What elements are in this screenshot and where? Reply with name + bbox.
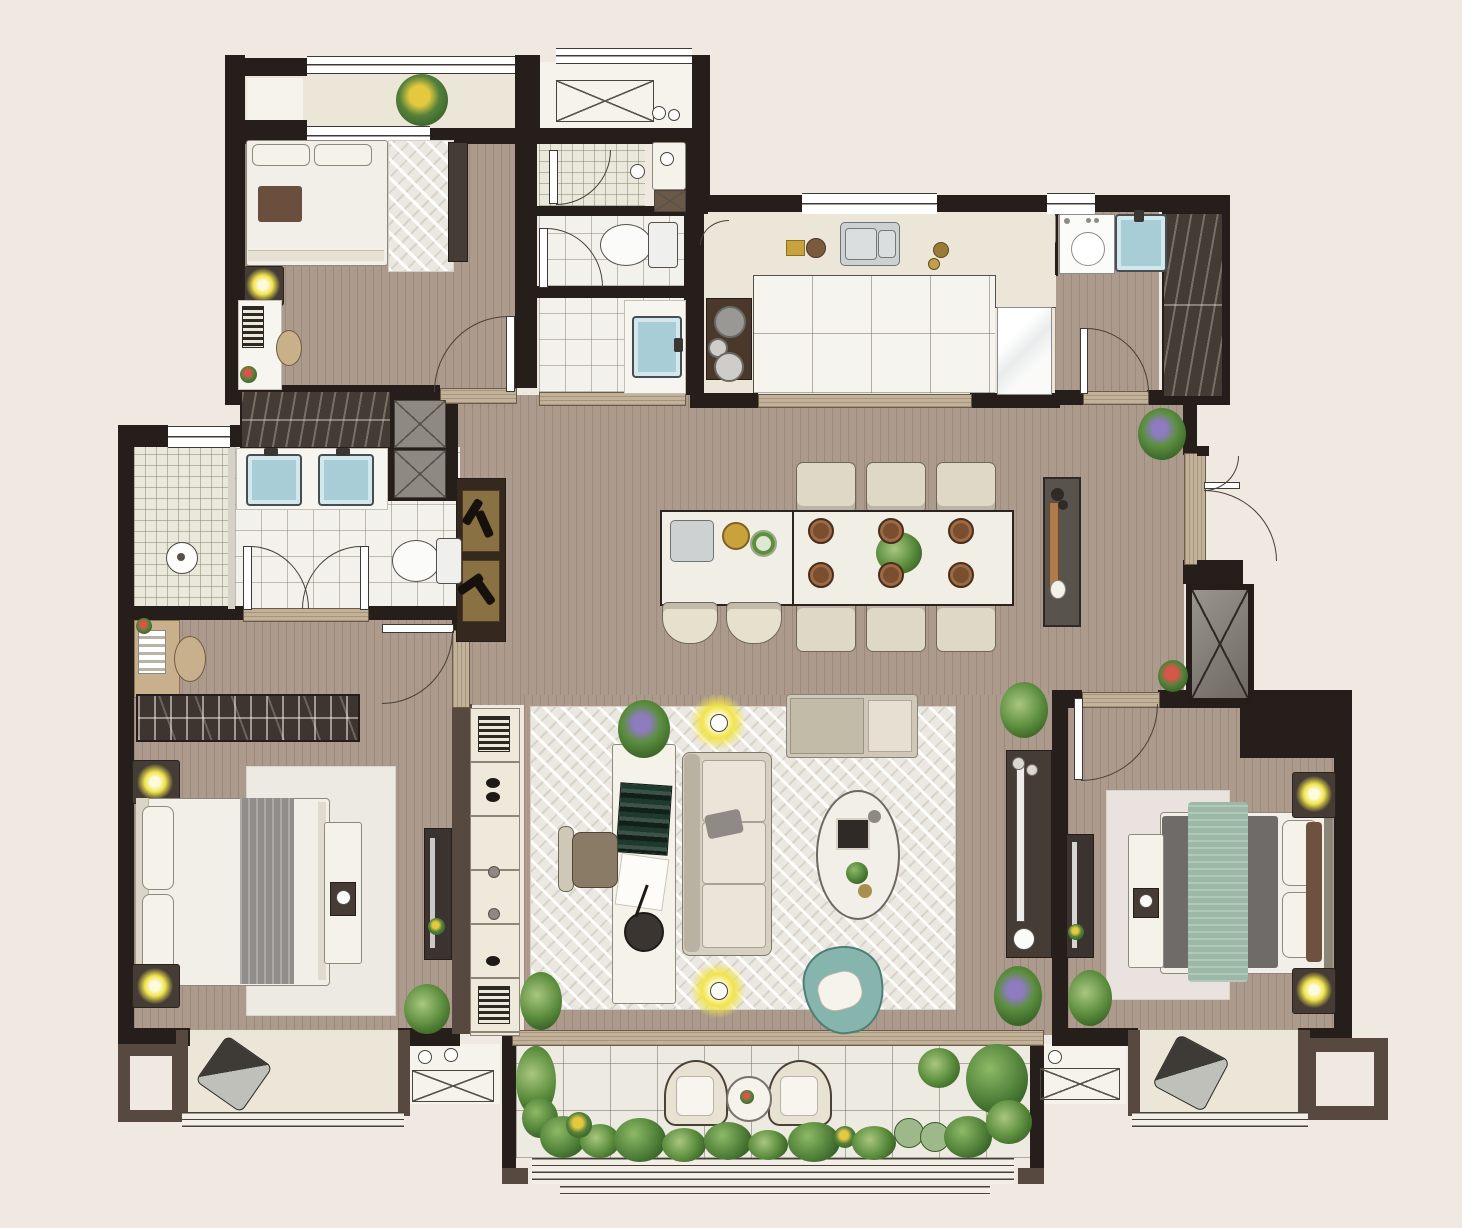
place-setting bbox=[878, 518, 904, 544]
foyer-plant bbox=[1138, 408, 1186, 460]
second-lamp bbox=[1296, 972, 1332, 1008]
living-plant bbox=[618, 700, 670, 758]
console-bowl bbox=[1013, 928, 1035, 950]
wall bbox=[537, 286, 685, 298]
wall bbox=[1095, 195, 1230, 212]
second-bed-runner bbox=[1188, 802, 1248, 982]
utility-enclosure-southeast-inner bbox=[1316, 1052, 1374, 1106]
bath-shaft bbox=[652, 142, 686, 190]
coffee-table bbox=[816, 790, 900, 920]
ac-unit-north-outline bbox=[556, 80, 654, 122]
guest-bed-pillow bbox=[252, 144, 310, 166]
washer-knob bbox=[1086, 218, 1091, 223]
shelf-books bbox=[478, 716, 510, 752]
entry-shaft-x bbox=[1186, 584, 1254, 704]
desk-books bbox=[616, 782, 673, 855]
master-lamp bbox=[137, 764, 173, 800]
daybed-cushion bbox=[790, 698, 864, 754]
coffee-table-books bbox=[836, 818, 870, 850]
foyer-coat-closet bbox=[1162, 212, 1224, 398]
shelf-books bbox=[478, 986, 510, 1024]
refrigerator bbox=[997, 307, 1052, 395]
master-bed-runner bbox=[240, 798, 294, 984]
balcony-wall bbox=[1030, 1036, 1044, 1184]
master-tv-panel bbox=[424, 828, 452, 960]
dining-chair bbox=[936, 462, 996, 514]
washer-knob bbox=[1064, 218, 1070, 224]
balcony-plant bbox=[788, 1122, 840, 1162]
balcony-armchair-seat bbox=[676, 1076, 714, 1116]
place-setting bbox=[878, 562, 904, 588]
second-lamp bbox=[1296, 776, 1332, 812]
utility-enclosure-southwest-inner bbox=[130, 1056, 172, 1110]
entry-hinge-stub bbox=[1197, 560, 1209, 570]
floor-lamp-ring bbox=[710, 982, 728, 1000]
laundry-window bbox=[1047, 193, 1095, 215]
wall bbox=[937, 195, 1047, 212]
ensuite-shaft-x bbox=[394, 450, 446, 498]
master-bench-cup bbox=[336, 890, 351, 905]
kitchen-window bbox=[802, 193, 937, 215]
second-flower bbox=[1068, 924, 1084, 940]
kitchen-work-floor bbox=[753, 275, 995, 393]
fruit-bowl-green bbox=[750, 530, 777, 557]
dining-chair bbox=[796, 462, 856, 514]
guest-desk-stool bbox=[276, 330, 302, 366]
vanity-sink bbox=[246, 454, 302, 506]
tv-screen bbox=[1016, 766, 1025, 922]
shelf-ornament bbox=[486, 792, 500, 802]
place-setting bbox=[808, 562, 834, 588]
bay-column bbox=[398, 1030, 410, 1116]
master-shower-floor bbox=[134, 447, 228, 609]
master-lamp bbox=[137, 968, 173, 1004]
guest-lamp bbox=[246, 268, 280, 302]
ensuite-toilet-bowl bbox=[392, 540, 440, 582]
guest-toilet-tank bbox=[648, 222, 678, 268]
pipe-circle bbox=[444, 1048, 458, 1062]
balcony-plant bbox=[918, 1048, 960, 1088]
master-bookshelf bbox=[136, 694, 360, 742]
condiment bbox=[928, 258, 940, 270]
balcony-plant bbox=[852, 1126, 896, 1160]
tv-console bbox=[1006, 750, 1052, 958]
sideboard-knob bbox=[1058, 500, 1068, 510]
entry-door-swing-large bbox=[1204, 490, 1277, 561]
master-pillow bbox=[142, 806, 174, 890]
shelf-ornament bbox=[486, 778, 500, 788]
bay-column bbox=[1128, 1030, 1140, 1116]
condiment bbox=[933, 242, 949, 258]
kitchen-sink-bowl bbox=[878, 230, 896, 258]
wall bbox=[515, 138, 537, 388]
vent-circle bbox=[668, 109, 680, 121]
bath-shaft-x bbox=[654, 190, 686, 212]
wall bbox=[970, 393, 1060, 408]
vanity-door-leaf bbox=[360, 546, 369, 610]
shaft-circle bbox=[660, 152, 674, 166]
guest-bed-throw bbox=[258, 186, 302, 222]
vent-circle bbox=[652, 106, 666, 120]
bay-window-west-railing bbox=[182, 1112, 404, 1128]
balcony-sliding-sill bbox=[512, 1030, 1044, 1046]
dining-chair bbox=[936, 600, 996, 652]
burner bbox=[714, 306, 746, 338]
guest-desk-flower bbox=[240, 366, 257, 383]
washer-drum bbox=[1071, 232, 1105, 266]
second-headboard bbox=[1324, 814, 1332, 970]
washer-knob bbox=[1094, 218, 1099, 223]
island-sink bbox=[670, 520, 714, 562]
ensuite-toilet-tank bbox=[436, 538, 462, 584]
wall bbox=[515, 55, 540, 138]
vanity-faucet bbox=[264, 448, 278, 456]
second-bench-cup bbox=[1139, 894, 1153, 908]
coffee-table-dish bbox=[868, 810, 881, 823]
guest-desk-books bbox=[242, 306, 264, 348]
master-plant bbox=[404, 984, 450, 1034]
wall bbox=[690, 393, 758, 408]
burner bbox=[714, 352, 744, 382]
balcony-niche bbox=[247, 78, 303, 120]
balcony-plant bbox=[566, 1112, 592, 1138]
balcony-plant bbox=[748, 1130, 788, 1160]
master-desk-books bbox=[138, 630, 166, 674]
wall bbox=[1334, 758, 1352, 1042]
floor-plan-canvas bbox=[0, 0, 1462, 1228]
vanity-sink bbox=[318, 454, 374, 506]
partition-wall bbox=[452, 704, 472, 1034]
guest-bed-pillow bbox=[314, 144, 372, 166]
guest-sink-faucet bbox=[674, 338, 683, 352]
place-setting bbox=[808, 518, 834, 544]
dining-chair bbox=[866, 462, 926, 514]
guest-dresser bbox=[448, 142, 468, 262]
shower-head bbox=[630, 164, 645, 179]
wall bbox=[245, 58, 307, 76]
master-shower-window bbox=[168, 426, 230, 448]
entry-hinge-stub bbox=[1197, 446, 1209, 456]
bay-window-east-railing bbox=[1132, 1112, 1308, 1128]
office-chair-seat bbox=[572, 832, 618, 888]
living-plant bbox=[1000, 682, 1048, 738]
vanity-faucet bbox=[336, 448, 350, 456]
vanity-door-sill bbox=[243, 608, 369, 622]
coffee-table-plant bbox=[846, 862, 868, 884]
balcony-plant bbox=[944, 1116, 992, 1158]
kitchen-pass-sill bbox=[758, 394, 972, 408]
laundry-sink bbox=[1115, 214, 1167, 272]
balcony-plant bbox=[704, 1122, 752, 1160]
balcony-plant bbox=[614, 1118, 666, 1162]
console-cup bbox=[1012, 757, 1025, 770]
cutting-board bbox=[786, 240, 805, 256]
shelf-ornament bbox=[486, 956, 500, 966]
guest-sinkroom-sill bbox=[539, 392, 686, 406]
balcony-plant bbox=[986, 1100, 1032, 1144]
wall bbox=[1183, 395, 1197, 455]
ac-unit-west-outline bbox=[412, 1070, 494, 1102]
second-tv-panel bbox=[1066, 834, 1094, 958]
second-plant bbox=[1068, 970, 1112, 1026]
master-desk-chair bbox=[174, 636, 206, 682]
table-flower bbox=[740, 1090, 754, 1104]
sofa-back bbox=[684, 754, 700, 952]
kitchen-sink-bowl bbox=[845, 228, 877, 260]
balcony-armchair-seat bbox=[780, 1076, 818, 1116]
second-pillow-brown bbox=[1306, 822, 1322, 962]
dining-chair bbox=[866, 600, 926, 652]
laundry-faucet bbox=[1134, 210, 1144, 222]
foyer-flower bbox=[1158, 660, 1188, 692]
balcony-corner-block bbox=[1018, 1168, 1044, 1184]
balcony-corner-block bbox=[502, 1168, 528, 1184]
desk-lamp bbox=[624, 912, 664, 952]
wall bbox=[368, 606, 470, 620]
balcony-top-railing-window bbox=[307, 56, 515, 74]
dining-chair bbox=[796, 600, 856, 652]
laundry-door-sill bbox=[1083, 391, 1149, 405]
guest-rug bbox=[388, 140, 454, 272]
balcony-south-railing bbox=[532, 1158, 1014, 1184]
fruit-bowl-yellow bbox=[722, 522, 750, 550]
wall bbox=[118, 425, 134, 1045]
pipe-circle bbox=[418, 1050, 432, 1064]
shelf-handle bbox=[488, 908, 500, 920]
wall bbox=[1055, 390, 1083, 405]
shower-glass-partition bbox=[228, 447, 235, 609]
master-flower bbox=[428, 918, 445, 935]
floor-lamp-ring bbox=[710, 714, 728, 732]
entry-door-sill bbox=[1184, 453, 1206, 565]
place-setting bbox=[948, 562, 974, 588]
wall bbox=[1240, 690, 1352, 758]
balcony-top-plant bbox=[396, 74, 448, 126]
balcony-south-step bbox=[560, 1186, 990, 1195]
guest-wardrobe bbox=[240, 390, 392, 449]
place-setting bbox=[948, 518, 974, 544]
shelf-handle bbox=[488, 866, 500, 878]
daybed-pillow bbox=[868, 700, 912, 752]
wall bbox=[1147, 390, 1162, 405]
living-plant bbox=[994, 966, 1042, 1026]
sofa-cushion bbox=[702, 884, 766, 948]
wall bbox=[1052, 1028, 1138, 1046]
ac-unit-east-outline bbox=[1040, 1068, 1120, 1100]
ensuite-shaft-x bbox=[394, 400, 446, 448]
console-cup bbox=[1026, 764, 1038, 776]
master-desk-flower bbox=[136, 618, 152, 634]
ac-platform-north-railing bbox=[556, 48, 692, 64]
balcony-wall bbox=[502, 1036, 516, 1184]
wall bbox=[690, 195, 802, 212]
guest-bed-foot-fold bbox=[248, 250, 384, 261]
shower-drain bbox=[177, 553, 185, 561]
guest-toilet-bowl bbox=[600, 224, 652, 266]
cooking-pot bbox=[806, 238, 826, 258]
kitchen-counter-right-step bbox=[995, 275, 1056, 308]
living-plant bbox=[520, 972, 562, 1030]
coffee-table-dish bbox=[858, 884, 872, 898]
sideboard-vase bbox=[1050, 580, 1066, 599]
wall bbox=[118, 606, 243, 620]
balcony-plant bbox=[662, 1128, 706, 1162]
pipe-circle bbox=[1048, 1050, 1062, 1064]
sideboard-utensil bbox=[1049, 502, 1059, 588]
